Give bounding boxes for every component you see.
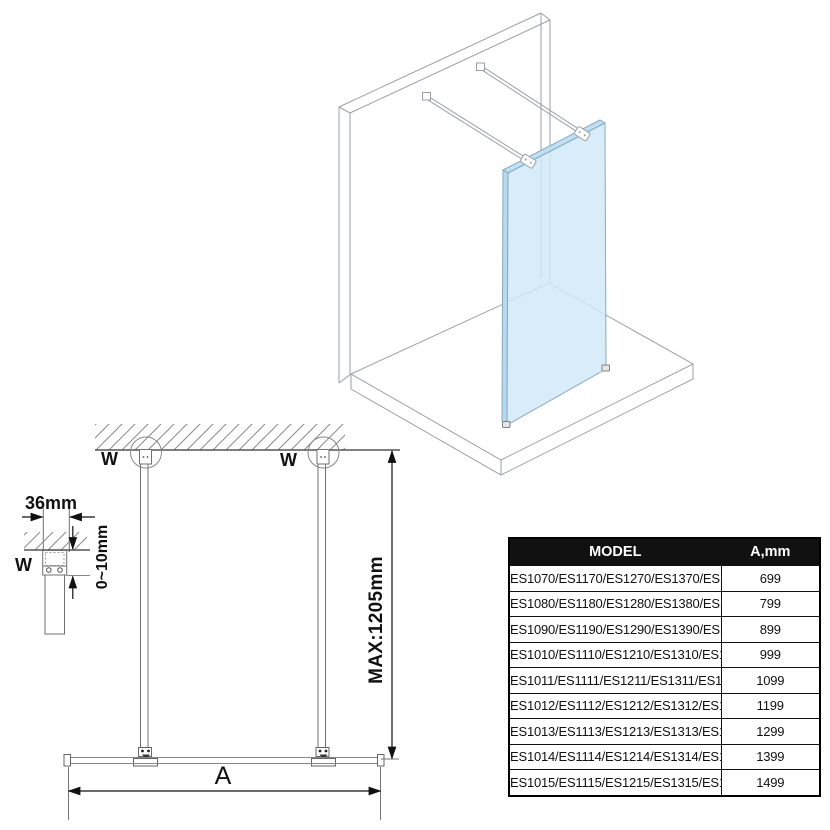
support-bar-front	[423, 93, 537, 169]
model-cell: ES1015/ES1115/ES1215/ES1315/ES1515	[509, 770, 721, 796]
table-row: ES1011/ES1111/ES1211/ES1311/ES1511 1099	[509, 668, 820, 694]
max-height-dimension-label: MAX:1205mm	[367, 545, 387, 695]
a-mm-cell: 799	[721, 591, 820, 617]
width-a-dimension-label: A	[206, 764, 240, 789]
model-cell: ES1080/ES1180/ES1280/ES1380/ES1580	[509, 591, 721, 617]
gap-range-dimension-label: 0~10mm	[95, 513, 113, 601]
table-row: ES1012/ES1112/ES1212/ES1312/ES1512 1199	[509, 693, 820, 719]
model-cell: ES1013/ES1113/ES1213/ES1313/ES1513	[509, 719, 721, 745]
a-mm-cell: 1499	[721, 770, 820, 796]
ceiling-hatch-detail	[24, 532, 87, 550]
a-mm-cell: 1299	[721, 719, 820, 745]
a-mm-cell: 899	[721, 617, 820, 643]
support-bar-back	[477, 63, 591, 141]
size-table-header-row: MODEL A,mm	[509, 538, 820, 566]
model-cell: ES1014/ES1114/ES1214/ES1314/ES1514	[509, 744, 721, 770]
wall-mount-label-left: W	[101, 450, 118, 468]
a-mm-cell: 1199	[721, 693, 820, 719]
bar-width-dimension-label: 36mm	[25, 494, 77, 512]
model-cell: ES1012/ES1112/ES1212/ES1312/ES1512	[509, 693, 721, 719]
table-row: ES1090/ES1190/ES1290/ES1390/ES1590 899	[509, 617, 820, 643]
a-mm-cell: 699	[721, 566, 820, 592]
isometric-view	[339, 13, 693, 475]
mount-detail-view	[22, 508, 95, 634]
table-row: ES1080/ES1180/ES1280/ES1380/ES1580 799	[509, 591, 820, 617]
model-cell: ES1010/ES1110/ES1210/ES1310/ES1510	[509, 642, 721, 668]
wall-mount-label-right: W	[280, 451, 297, 469]
bar-lower-profile	[45, 575, 65, 634]
wall-mount-label-detail: W	[15, 556, 32, 574]
a-mm-cell: 999	[721, 642, 820, 668]
model-cell: ES1070/ES1170/ES1270/ES1370/ES1570	[509, 566, 721, 592]
support-bar-left-2d	[140, 450, 152, 749]
support-bar-right-2d	[317, 450, 329, 749]
a-mm-cell: 1099	[721, 668, 820, 694]
model-column-header: MODEL	[509, 538, 721, 566]
a-mm-column-header: A,mm	[721, 538, 820, 566]
table-row: ES1015/ES1115/ES1215/ES1315/ES1515 1499	[509, 770, 820, 796]
ceiling-hatch	[95, 424, 345, 450]
a-mm-cell: 1399	[721, 744, 820, 770]
model-cell: ES1011/ES1111/ES1211/ES1311/ES1511	[509, 668, 721, 694]
model-cell: ES1090/ES1190/ES1290/ES1390/ES1590	[509, 617, 721, 643]
table-row: ES1013/ES1113/ES1213/ES1313/ES1513 1299	[509, 719, 820, 745]
table-row: ES1014/ES1114/ES1214/ES1314/ES1514 1399	[509, 744, 820, 770]
ceiling-bracket	[43, 551, 67, 576]
size-table: MODEL A,mm ES1070/ES1170/ES1270/ES1370/E…	[508, 537, 821, 797]
table-row: ES1010/ES1110/ES1210/ES1310/ES1510 999	[509, 642, 820, 668]
shower-screen-installation-sheet: W W W 36mm 0~10mm MAX:1205mm A MODEL A,m…	[0, 0, 830, 830]
elevation-view	[64, 424, 400, 820]
table-row: ES1070/ES1170/ES1270/ES1370/ES1570 699	[509, 566, 820, 592]
